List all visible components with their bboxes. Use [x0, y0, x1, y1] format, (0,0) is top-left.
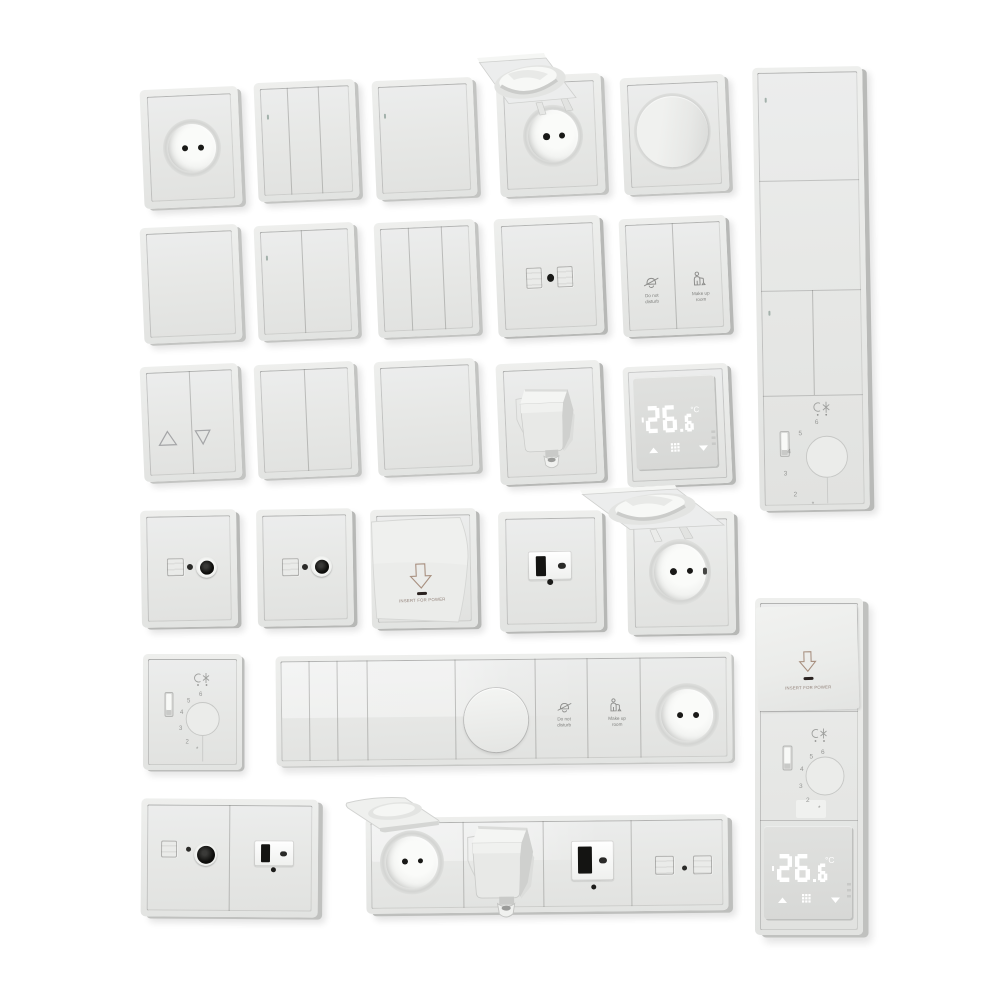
svg-text:°C: °C — [825, 855, 835, 865]
svg-text:3: 3 — [179, 726, 183, 732]
svg-text:6: 6 — [199, 692, 203, 698]
svg-text:4: 4 — [800, 766, 804, 773]
svg-text:6: 6 — [821, 749, 825, 756]
svg-text:6: 6 — [815, 419, 819, 426]
svg-text:*: * — [812, 501, 815, 508]
svg-text:2: 2 — [806, 797, 810, 804]
svg-text:*: * — [196, 747, 199, 753]
svg-text:3: 3 — [799, 783, 803, 790]
svg-text:2: 2 — [186, 740, 190, 746]
svg-text:4: 4 — [180, 710, 184, 716]
svg-text:3: 3 — [784, 470, 788, 477]
svg-text:5: 5 — [810, 754, 814, 761]
svg-text:2: 2 — [794, 491, 798, 498]
svg-text:5: 5 — [798, 430, 802, 437]
svg-text:4: 4 — [787, 448, 791, 455]
svg-text:°C: °C — [690, 405, 700, 414]
svg-text:5: 5 — [187, 699, 191, 705]
